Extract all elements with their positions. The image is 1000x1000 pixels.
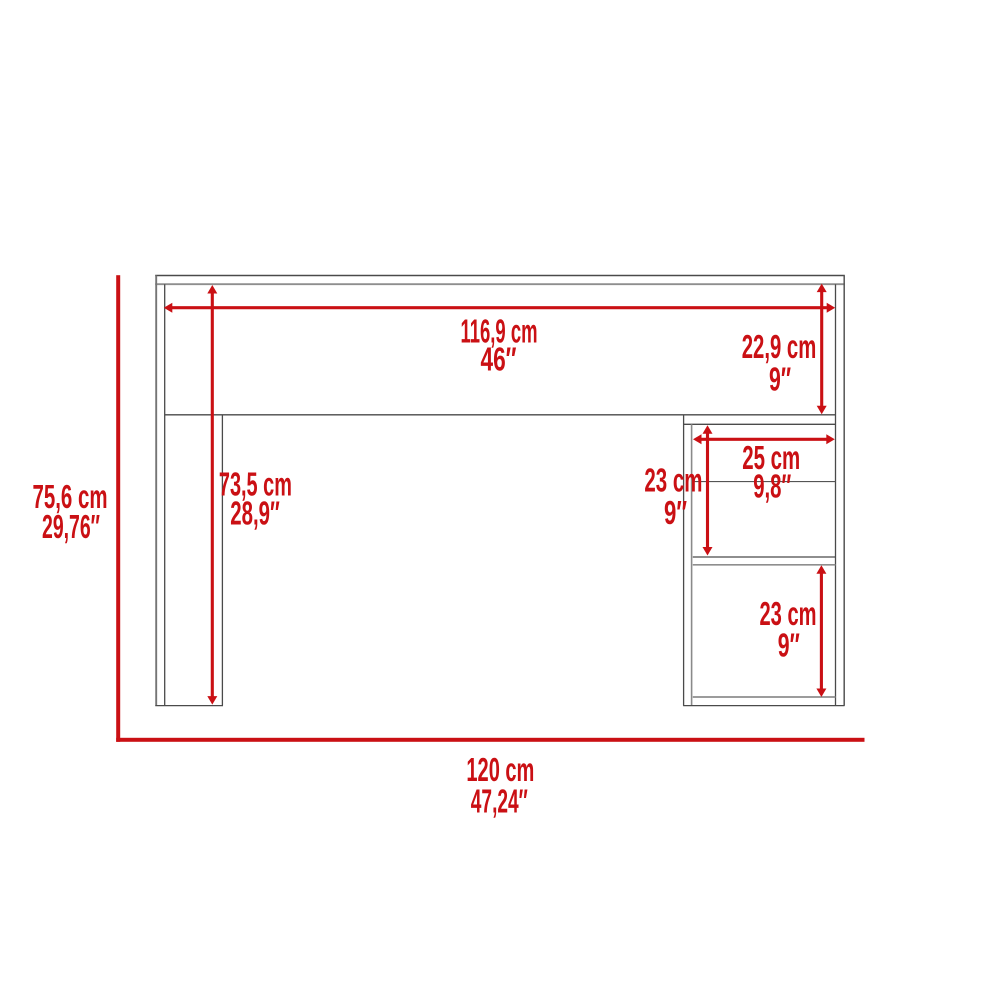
svg-text:9″: 9″ bbox=[778, 627, 800, 664]
svg-text:9″: 9″ bbox=[769, 361, 791, 398]
svg-text:28,9″: 28,9″ bbox=[230, 495, 280, 532]
svg-text:9,8″: 9,8″ bbox=[753, 467, 791, 504]
svg-text:23 cm: 23 cm bbox=[644, 461, 702, 498]
svg-text:22,9 cm: 22,9 cm bbox=[742, 328, 817, 365]
svg-text:9″: 9″ bbox=[664, 494, 687, 531]
svg-text:29,76″: 29,76″ bbox=[42, 508, 100, 545]
svg-text:46″: 46″ bbox=[481, 340, 517, 377]
svg-text:47,24″: 47,24″ bbox=[471, 783, 528, 820]
